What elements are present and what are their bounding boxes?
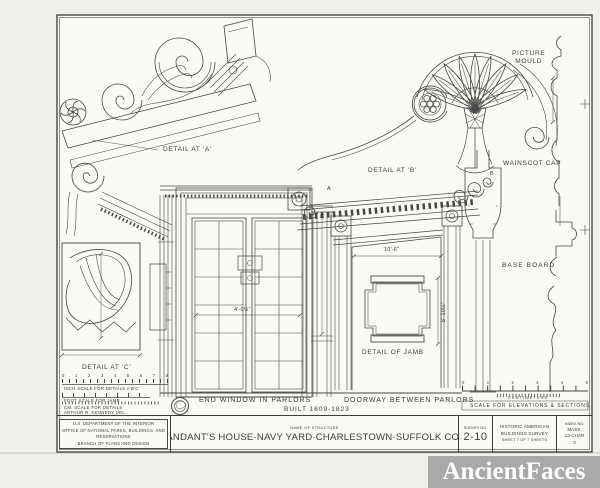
label-built-date: BUILT 1809-1823: [284, 406, 350, 413]
agency-line2: OFFICE OF NATIONAL PARKS, BUILDINGS, AND…: [62, 428, 165, 441]
foot-scale-label: FOOT SCALE FOR JAMB: [64, 398, 120, 403]
centimeters-label: CENTIMETERS: [508, 396, 548, 400]
title-block-survey-cell: SURVEY NO. 2-10: [458, 416, 492, 452]
leaf-detail-drawing: [60, 243, 171, 357]
label-doorway: DOORWAY BETWEEN PARLORS: [344, 397, 474, 404]
dim-window-width: 4'-0½": [234, 307, 251, 313]
cornice-end-scroll-drawing: [66, 163, 172, 240]
survey-number: 2-10: [463, 431, 487, 443]
habs-stamp: [172, 398, 189, 415]
name-of-structure-label: NAME OF STRUCTURE: [290, 426, 339, 430]
ancientfaces-watermark: AncientFaces: [428, 456, 600, 488]
moulding-profiles: [548, 36, 590, 392]
elev-scale-label: SCALE FOR ELEVATIONS & SECTIONS: [470, 403, 590, 409]
survey-org-line2: BUILDINGS SURVEY: [501, 431, 548, 438]
marker-a: A: [327, 186, 331, 192]
agency-line3: BRANCH OF PLANS AND DESIGN: [62, 441, 165, 448]
survey-no-label: SURVEY NO.: [464, 426, 487, 430]
agency-text: U.S. DEPARTMENT OF THE INTERIOR OFFICE O…: [59, 419, 168, 449]
turned-pendant-drawing: [465, 150, 501, 392]
dim-doorway-height: 6'-10½": [441, 302, 447, 322]
label-picture-mould: PICTURE MOULD: [512, 50, 545, 66]
label-detail-c: DETAIL AT 'C': [82, 364, 131, 371]
survey-org-line1: HISTORIC AMERICAN: [500, 424, 550, 431]
agency-line1: U.S. DEPARTMENT OF THE INTERIOR: [62, 421, 165, 428]
index-line3: 3: [573, 440, 576, 446]
sheet-info: SHEET 7 OF 7 SHEETS: [502, 438, 547, 444]
scanned-habs-sheet: DETAIL AT 'A' DETAIL AT 'B' DETAIL AT 'C…: [0, 0, 600, 488]
inch-scale-label: INCH SCALE FOR DETAILS A'B'C': [64, 386, 140, 391]
dim-doorway-width: 10'-6": [384, 247, 399, 253]
inch-scale-numbers: 01 23 45 67 8: [62, 373, 168, 378]
end-window-elevation: [158, 186, 333, 397]
title-block-index-cell: INDEX NO. MASS. 13-CHAR 3: [556, 416, 592, 452]
title-block-name-cell: NAME OF STRUCTURE COMMANDANT'S HOUSE·NAV…: [170, 416, 458, 452]
title-block-habs-cell: HISTORIC AMERICAN BUILDINGS SURVEY SHEET…: [492, 416, 556, 452]
label-detail-of-jamb: DETAIL OF JAMB: [362, 349, 424, 356]
title-block-agency-cell: U.S. DEPARTMENT OF THE INTERIOR OFFICE O…: [57, 416, 170, 452]
label-end-window: END WINDOW IN PARLORS: [199, 397, 311, 404]
label-detail-a: DETAIL AT 'A': [163, 146, 212, 153]
delineator-credit: ARTHUR R. KENNEDY DEL.: [64, 410, 127, 415]
label-detail-b: DETAIL AT 'B': [368, 167, 417, 174]
structure-name: COMMANDANT'S HOUSE·NAVY YARD·CHARLESTOWN…: [170, 432, 458, 443]
anthemion-fan-drawing: [298, 52, 557, 173]
label-wainscot-cap: WAINSCOT CAP: [503, 160, 561, 167]
title-block: U.S. DEPARTMENT OF THE INTERIOR OFFICE O…: [57, 415, 592, 452]
marker-b: B: [490, 171, 494, 177]
marker-c: C: [320, 214, 324, 220]
label-base-board: BASE BOARD: [502, 262, 555, 269]
elev-scale-numbers: 01 23 45: [462, 380, 588, 385]
